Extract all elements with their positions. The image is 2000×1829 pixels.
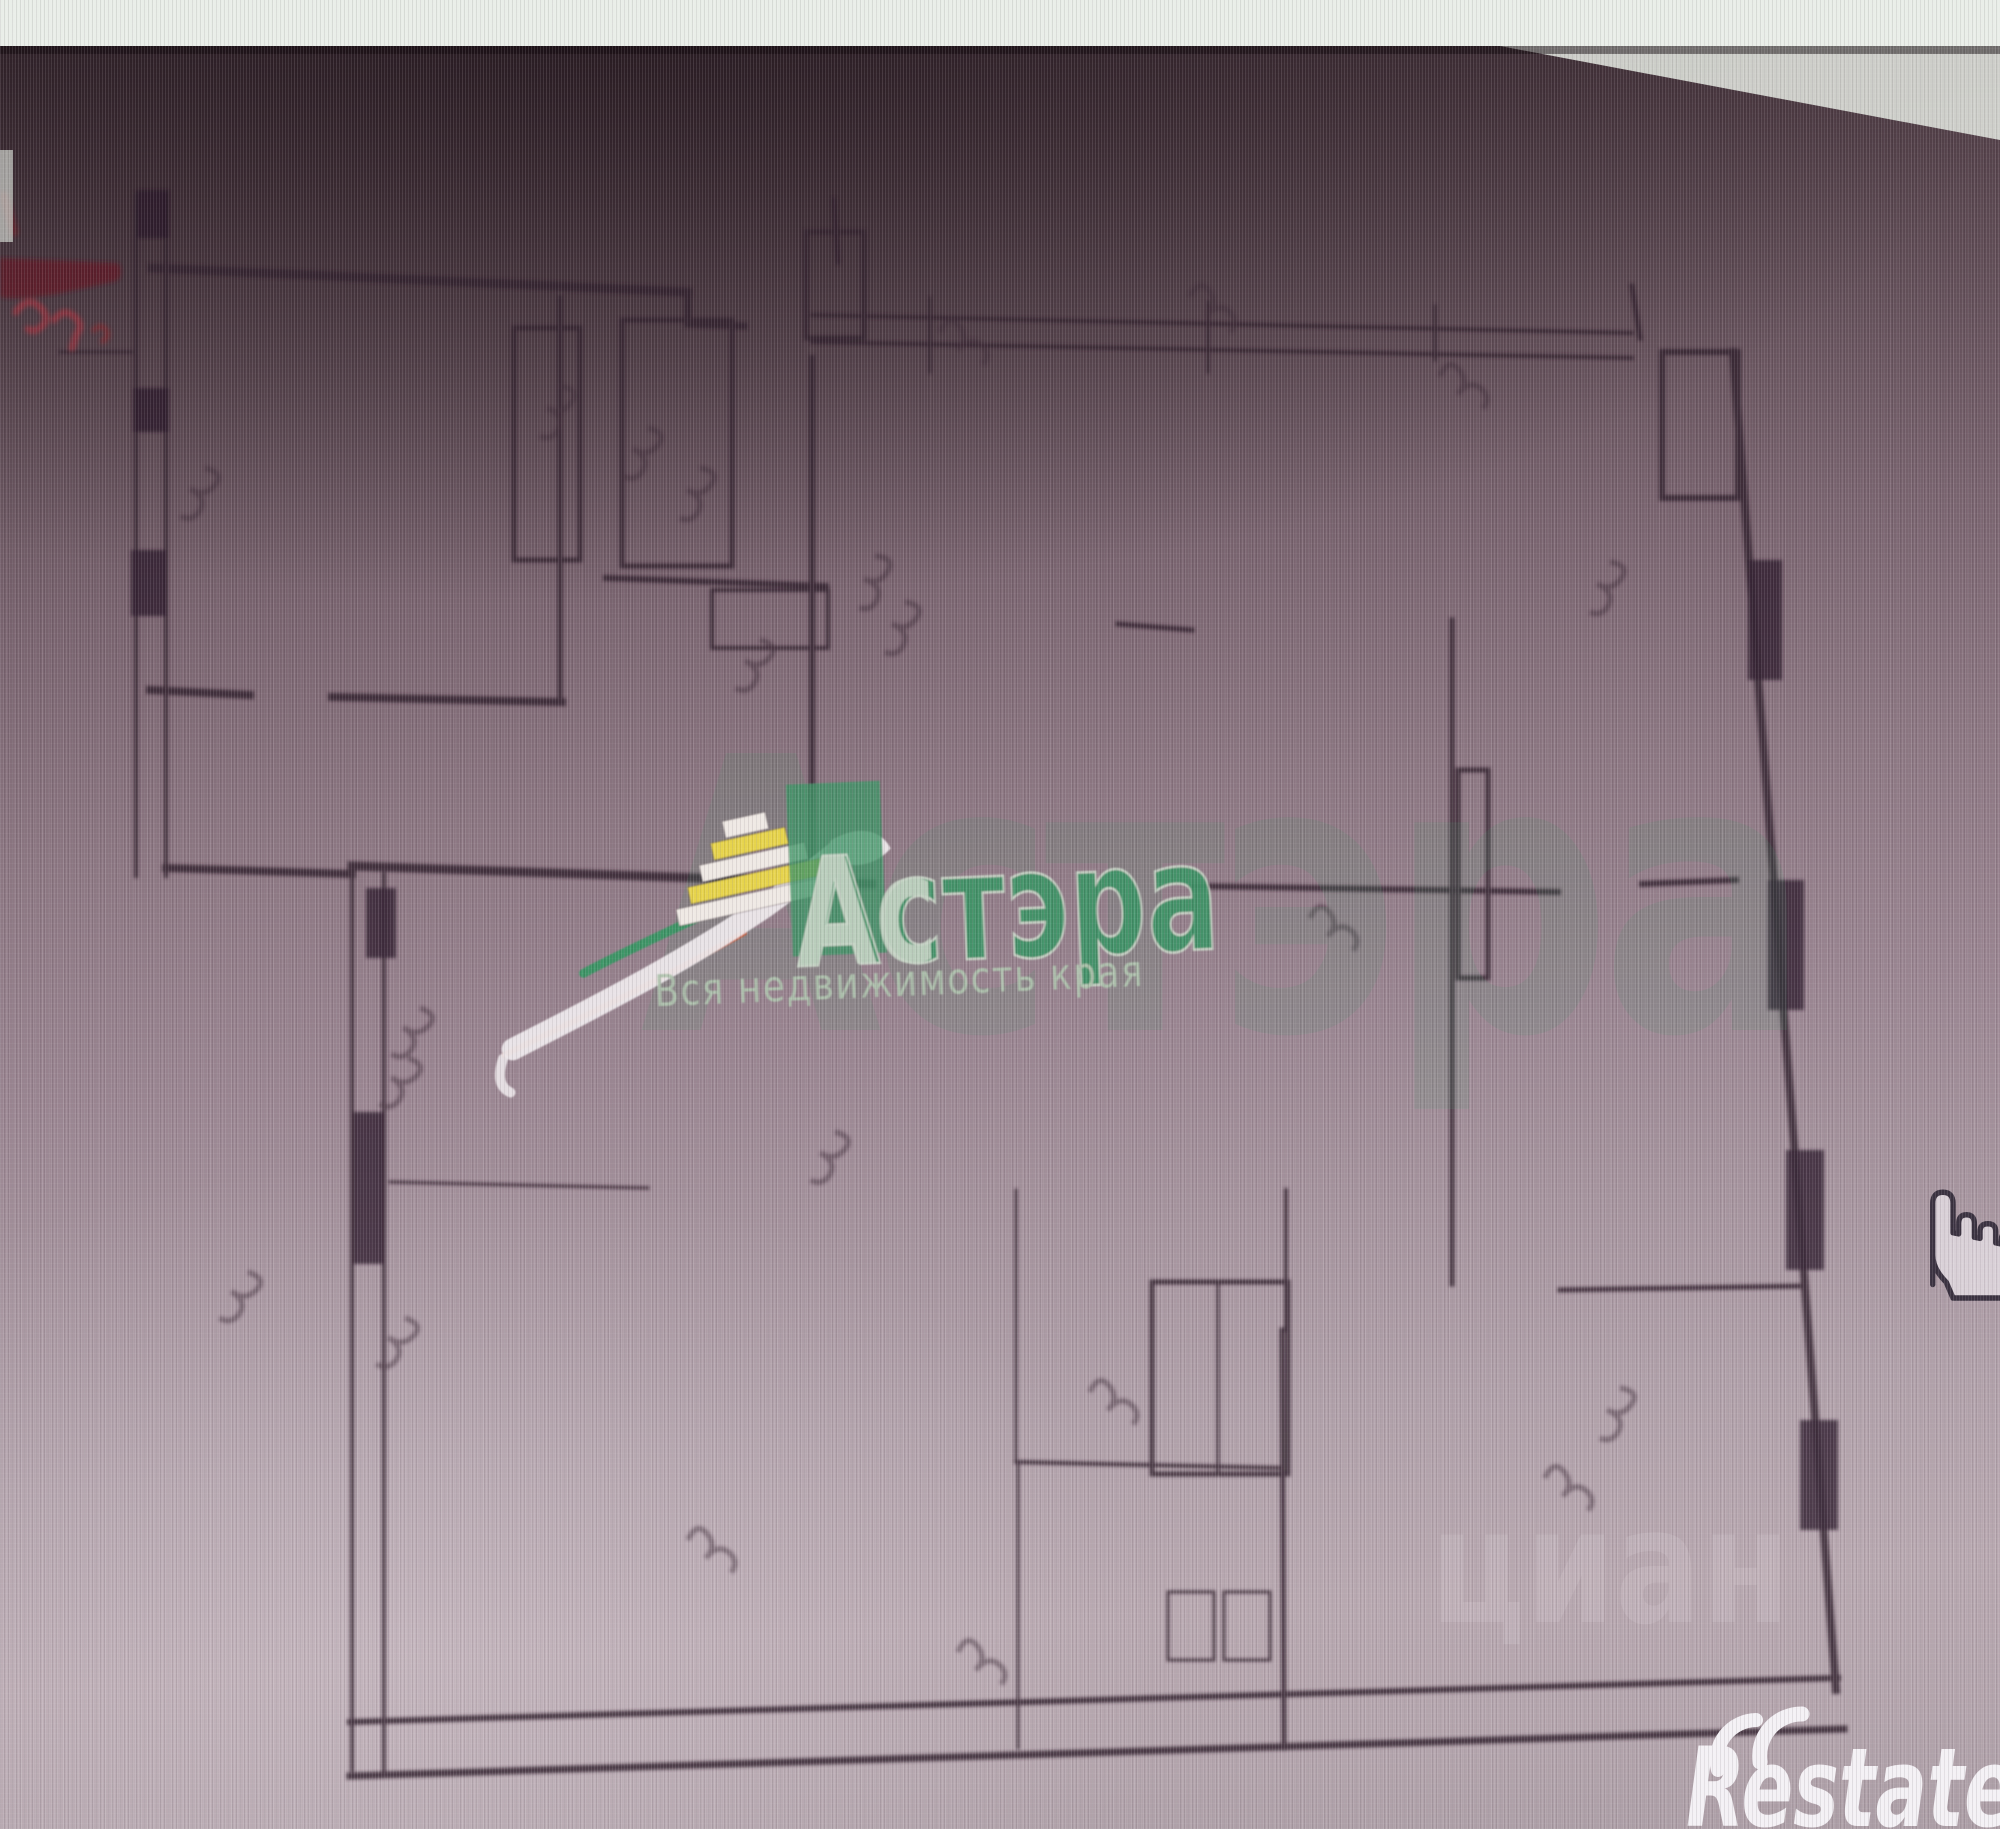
floorplan-svg[interactable]: Астэра Астэра Ас Вся недвижимость края [0, 0, 2000, 1829]
watermark-cian: циан [1430, 1473, 1790, 1660]
photo-corner-wedge [1500, 46, 2000, 140]
screenshot-root: Астэра Астэра Ас Вся недвижимость края [0, 0, 2000, 1829]
restate-text: Restate [1686, 1724, 2000, 1829]
red-stamp [0, 196, 121, 348]
left-edge-light-patch [0, 150, 13, 242]
restate-logo: Restate [1686, 1714, 2000, 1829]
hand-cursor-icon [1933, 1192, 2000, 1298]
top-white-strip [0, 0, 2000, 46]
photo-top-edge [0, 46, 2000, 54]
